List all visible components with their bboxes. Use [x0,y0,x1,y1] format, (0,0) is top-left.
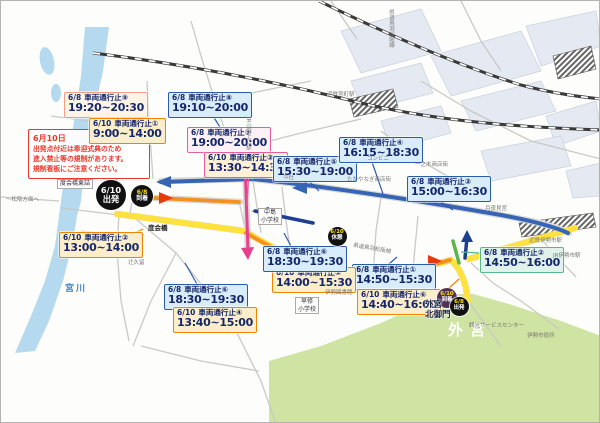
marker-arrival-6-8: 6/8 到着 [131,185,153,207]
place-label: 中島 小学校 [258,208,282,225]
place-label: JR山田上口駅 [244,117,252,150]
place-label: 度会橋 [148,222,168,232]
marker-text: 休憩 [331,236,342,242]
closure-box: 6/10車両通行止① 9:00~14:00 [89,118,166,144]
place-label: 一之木商店街 [415,160,448,168]
closure-box: 6/8車両通行止① 14:50~15:30 [352,264,436,290]
place-label: 外宮 北御門 [425,301,451,321]
closure-time: 13:40~15:00 [177,317,253,329]
notice-line: 進入禁止等の規制があります。 [33,155,145,165]
place-label: 早修 小学校 [295,297,319,314]
place-label: コンビニ [367,154,389,162]
closure-box: 6/8車両通行止⑥ 18:30~19:30 [164,284,248,310]
place-label: 宮川 [65,281,87,294]
marker-text: 出発 [453,306,464,312]
place-label: 県道鳥羽松阪線 [353,241,392,256]
closure-box: 6/8車両通行止⑨ 19:20~20:30 [64,92,148,118]
closure-time: 19:00~20:00 [191,137,267,149]
notice-line: 出発点付近は奉迎式典のため [33,145,145,155]
marker-departure-6-8: 6/8 出発 [450,297,469,316]
marker-departure-6-10: 6/10 出発 [96,180,126,210]
place-label: 近鉄宮町駅 [327,90,355,98]
closure-box: 6/8車両通行止⑥ 18:30~19:30 [263,246,347,272]
closure-box: 6/8車両通行止⑧ 19:10~20:00 [168,92,252,118]
marker-text: 到着 [136,196,148,202]
closure-box: 6/8車両通行止③ 15:00~16:30 [407,176,491,202]
closure-time: 18:30~19:30 [267,256,343,268]
closure-time: 19:20~20:30 [68,102,144,114]
closure-time: 9:00~14:00 [93,128,162,140]
closure-time: 14:50~16:00 [484,257,560,269]
marker-rest-6-10: 6/10 休憩 [328,227,347,246]
place-label: 度会橋東詰 [57,179,93,189]
place-label: 辻久留 [128,258,145,266]
closure-box: 6/10車両通行止② 13:00~14:00 [59,232,143,258]
place-label: ～松阪方面へ [6,195,39,203]
notice-line: 規制看板にご注意ください。 [33,165,145,175]
place-label: 近鉄伊勢市駅 [529,236,562,244]
place-label: JR伊勢市駅 [553,251,580,259]
map-canvas: 6月10日 出発点付近は奉迎式典のため 進入禁止等の規制があります。 規制看板に… [0,0,600,423]
place-label: 伊勢市役所 [527,331,555,339]
closure-box: 6/8車両通行止② 14:50~16:00 [480,247,564,273]
place-label: 観光サービスセンター [469,321,524,329]
label-overlay: 6月10日 出発点付近は奉迎式典のため 進入禁止等の規制があります。 規制看板に… [1,1,600,423]
closure-box: 6/8車両通行止⑦ 19:00~20:00 [187,127,271,153]
closure-box: 6/10車両通行止④ 13:40~15:00 [173,307,257,333]
place-label: 伊勢図書館 [325,288,353,296]
place-label: 今社 [283,173,294,181]
closure-time: 18:30~19:30 [168,294,244,306]
closure-time: 13:00~14:00 [63,242,139,254]
marker-text: 出発 [103,195,120,204]
closure-time: 14:50~15:30 [356,274,432,286]
closure-time: 15:00~16:30 [411,186,487,198]
closure-time: 19:10~20:00 [172,102,248,114]
place-label: 県道鳥羽松阪線 [387,9,395,48]
place-label: 月夜見宮 [485,204,507,212]
place-label: たかやなぎ商店街 [347,175,391,183]
